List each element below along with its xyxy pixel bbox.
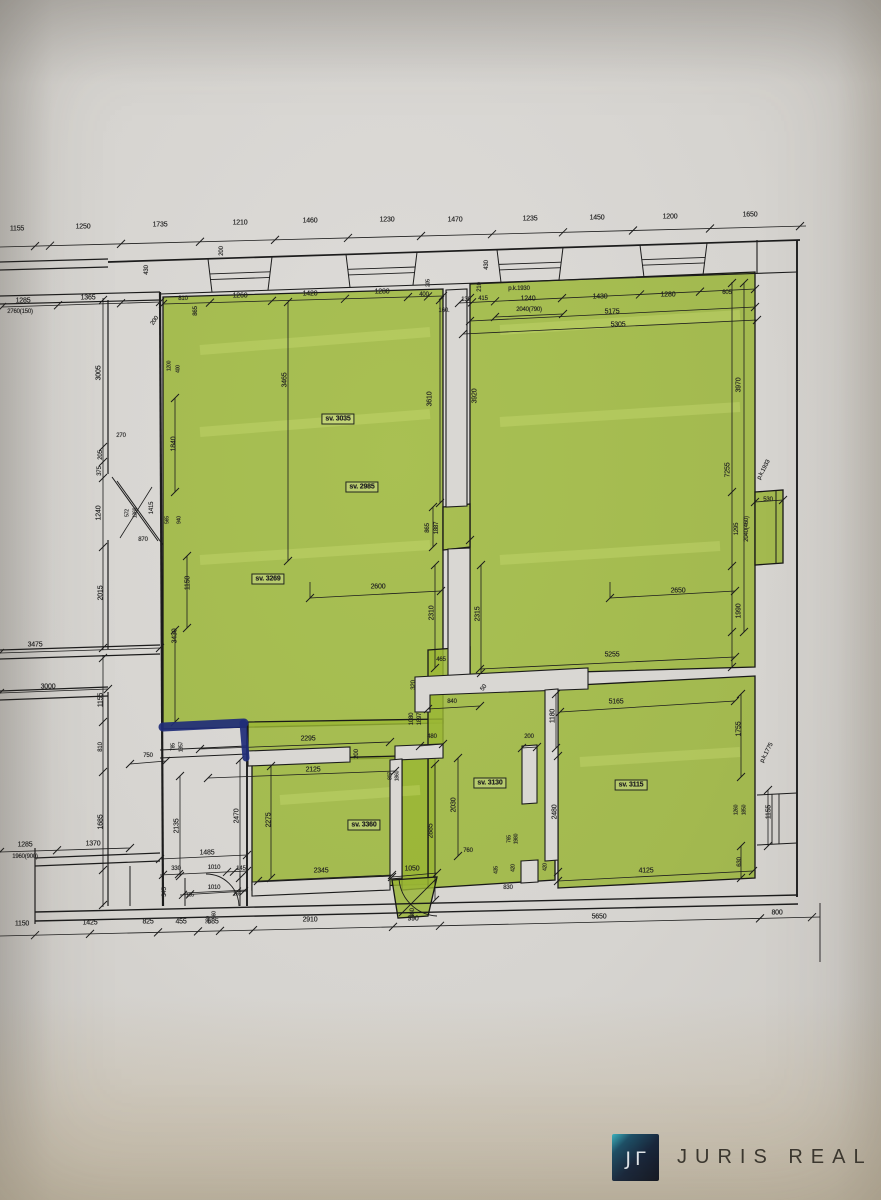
dim-label: 1897 [417,713,423,726]
dim-label: 1010 [208,885,221,891]
dim-label: 825 [142,919,153,926]
window-jamb [559,248,563,281]
room-label: sv. 2985 [345,482,378,493]
dim-label: 415 [478,296,487,302]
dim-label: 1960(900) [12,854,38,860]
dim-label: 1235 [523,216,538,223]
wall-line [0,259,108,262]
wall-line [0,645,160,650]
dim-label: 1260 [233,293,248,300]
dim-label: 870 [138,537,147,543]
hand-marker-stroke [163,723,244,727]
dim-label: 1370 [86,841,101,848]
dim-label: 455 [175,919,186,926]
dim-label: 1415 [149,502,155,515]
dim-label: 1260 [134,508,139,518]
dim-label: 1420 [303,291,318,298]
dim-label: 330 [171,866,180,872]
dim-label: 435 [495,866,500,874]
dim-label: 3920 [472,389,479,404]
dim-label: 1155 [10,226,24,233]
interior-wall [446,289,467,507]
dimension-line [130,761,166,764]
dim-label: 165 [186,894,194,899]
dim-label: 210 [477,282,483,291]
dim-label: 345 [162,887,168,896]
dim-label: 7255 [725,463,732,478]
window-sill [499,268,561,270]
window-sill [642,257,705,259]
window-sill [642,263,705,265]
dim-label: 990 [407,916,418,923]
dim-label: 420 [512,864,517,872]
dim-label: 2135 [174,819,181,834]
dim-label: 400 [419,292,428,298]
dim-label: 572 [126,509,131,517]
dim-label: 2600 [371,584,386,591]
dim-label: 4125 [639,868,654,875]
dim-label: 375 [97,466,103,475]
dim-label: 2040(790) [516,307,542,313]
room-label: sv. 3360 [347,820,380,831]
dim-label: 1150 [185,576,192,590]
dim-label: 1887 [434,522,440,535]
dim-label: 5165 [609,699,624,706]
dim-label: 765 [508,835,513,843]
floor-plan-photo: 1155125017351210146012301470123514501200… [0,0,881,1200]
logo-brand-text: JURIS REAL [677,1146,873,1169]
wall-line [0,696,108,700]
dim-label: 1210 [233,220,248,227]
dim-label: 1755 [736,722,743,737]
dim-label: 1150 [15,921,29,928]
dim-label: 139 [461,297,470,303]
dim-label: 145 [236,866,245,872]
dim-label: 165 [233,893,241,898]
dim-label: 1200 [168,361,173,371]
dim-label: 430 [484,260,490,269]
dim-label: 2885 [428,824,435,839]
dim-label: 5255 [605,652,620,659]
wall-line [757,843,797,845]
dim-label: 1470 [448,217,463,224]
room-label: sv. 3115 [615,780,648,791]
highlighted-room [443,504,470,550]
dim-label: 2030 [451,798,458,813]
dim-label: 3610 [427,392,434,407]
window-sill [499,262,561,264]
dim-label: 2040(460) [744,516,750,542]
dim-label: 200 [354,749,360,758]
dim-label: 1425 [83,920,98,927]
window-jamb [497,250,501,283]
dim-label: 830 [503,885,512,891]
room-label: sv. 3269 [251,574,284,585]
dim-label: 1857 [180,742,185,752]
dim-label: 807 [389,772,394,780]
dim-label: 3465 [282,373,289,388]
dim-label: 1230 [380,217,395,224]
dim-label: 1155 [98,693,105,707]
dim-label: 630 [737,857,743,866]
dimension-line [0,848,130,852]
window-jamb [640,245,644,277]
window-jamb [413,252,417,285]
dim-label: 1180 [550,709,557,723]
wall-line [35,861,160,866]
dim-label: 1240 [521,296,536,303]
dim-label: 320 [411,680,417,689]
dim-label: 940 [178,516,183,524]
hand-marker-stroke [243,723,246,758]
window-sill [210,272,270,274]
dim-label: 2470 [234,809,241,824]
dim-label: 160. [439,308,450,314]
interior-wall [448,548,470,678]
dim-label: 1260 [735,805,740,815]
dim-label: 605 [722,290,731,296]
dim-label: 2760(150) [7,309,33,315]
dim-label: 750 [143,753,152,759]
dim-label: 1980 [515,834,520,844]
interior-wall [521,860,538,883]
window-jamb [208,259,212,293]
interior-wall [248,747,350,766]
dim-label: 420 [544,863,549,871]
dim-label: 1200 [663,214,678,221]
dim-label: 1735 [153,222,168,229]
dim-label: 200 [219,246,225,255]
dim-label: 1295 [734,523,740,536]
room-label: sv. 3130 [473,778,506,789]
dim-label: 1450 [590,215,605,222]
dim-label: 3005 [96,366,103,381]
wall-line [0,654,160,659]
dim-label: 2015 [98,586,105,601]
dim-label: 2310 [429,606,436,621]
dim-label: 1840 [171,437,178,452]
dim-label: 270 [116,433,125,439]
dim-label: 1850 [743,805,748,815]
dim-label: 800 [771,910,782,917]
dim-label: 1050 [405,866,420,873]
dim-label: 2345 [314,868,329,875]
dim-label: 1285 [18,842,33,849]
highlighted-room [163,289,443,729]
floor-plan-drawing [0,0,881,1200]
dim-label: 2650 [671,588,686,595]
dim-label: 1650 [743,212,758,219]
dim-label: 685 [207,919,218,926]
dim-label: 1010 [208,865,221,871]
dim-label: 3000 [41,684,56,691]
dim-label: 1365 [81,295,96,302]
dim-label: 1685 [98,815,105,830]
dim-label: 3475 [28,642,43,649]
dim-label: 1990 [736,604,743,619]
dim-label: 5305 [611,322,626,329]
dim-label: 810 [98,742,104,751]
dim-label: 865 [193,306,199,315]
window-sill [348,273,415,275]
dim-label: 200 [524,734,533,740]
dim-label: 840 [447,699,456,705]
logo-glyphs: JΓ [625,1148,649,1170]
dim-label: 1250 [76,224,91,231]
dim-label: 1485 [200,850,215,857]
dim-label: 785 [172,743,177,751]
note-label: p.k.1930 [508,286,529,292]
dim-label: 2275 [266,813,273,828]
dim-label: 205 [427,279,432,287]
dim-label: 1280 [661,292,676,299]
dim-label: 3430 [172,629,179,644]
interior-wall [522,745,537,804]
dim-label: 530 [763,497,772,503]
dim-label: 5650 [592,914,607,921]
wall-line [108,240,800,262]
wall-line [757,793,797,795]
dim-label: 2295 [301,736,316,743]
window-jamb [346,254,350,287]
dim-label: 1080 [409,713,415,726]
dim-label: 3970 [736,378,743,393]
wall-line [0,267,108,270]
window-sill [348,267,415,269]
window-jamb [268,257,272,290]
dim-label: 1860 [396,771,401,781]
window-sill [210,277,270,279]
dim-label: 865 [425,523,431,532]
dim-label: 760 [463,848,472,854]
dim-label: 1430 [593,294,608,301]
dim-label: 1280 [375,289,390,296]
dim-label: 1155 [766,805,773,819]
dim-label: 2315 [475,607,482,622]
dim-label: 810 [178,296,187,302]
dim-label: 1285 [16,298,31,305]
dim-label: 465 [436,657,445,663]
juris-real-logo: JΓ JURIS REAL [612,1134,873,1181]
dim-label: 205 [98,450,104,459]
dim-label: 1240 [96,506,103,521]
dim-label: 565 [166,516,171,524]
window-jamb [703,243,707,275]
dim-label: 400 [177,365,182,373]
room-label: sv. 3035 [321,414,354,425]
wall-line [160,754,247,758]
dim-label: 430 [144,265,150,274]
dim-label: 5175 [605,309,620,316]
dim-label: 2125 [306,767,321,774]
highlighted-room [558,676,755,888]
logo-mark: JΓ [612,1134,659,1181]
dim-label: 480 [427,734,436,740]
dim-label: 2480 [552,805,559,820]
dim-label: 1460 [303,218,318,225]
dim-label: 2910 [303,917,318,924]
